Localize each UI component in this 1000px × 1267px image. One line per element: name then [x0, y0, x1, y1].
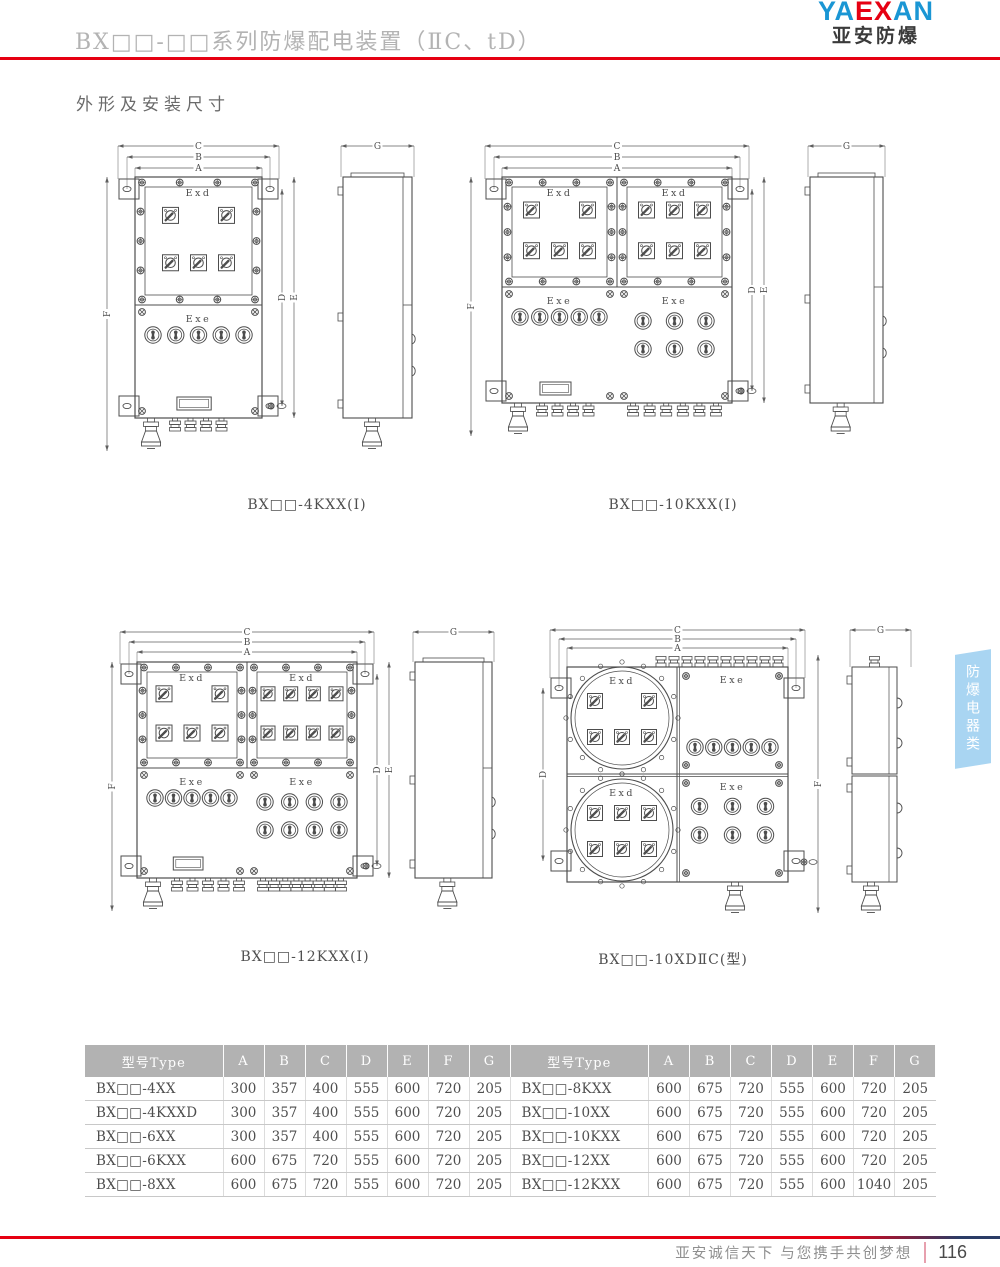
value-cell: 720	[854, 1101, 895, 1125]
table-row: BX□□-10KXX600675720555600720205	[511, 1125, 936, 1149]
model-cell: BX□□-6XX	[85, 1125, 223, 1149]
dim-label-E: E	[385, 767, 395, 774]
value-cell: 555	[772, 1149, 813, 1173]
model-cell: BX□□-4KXXD	[85, 1101, 223, 1125]
value-cell: 205	[895, 1149, 936, 1173]
value-cell: 600	[649, 1101, 690, 1125]
catalog-page: BX□□-□□系列防爆配电装置（ⅡC、tD） YAEXAN 亚安防爆 外形及安装…	[0, 0, 1000, 1267]
value-cell: 400	[305, 1101, 346, 1125]
dim-label-G: G	[843, 142, 850, 152]
dimension-table-right: 型号TypeABCDEFGBX□□-8KXX600675720555600720…	[511, 1045, 937, 1197]
dim-label-G: G	[450, 628, 457, 638]
dim-label-A: A	[613, 164, 621, 174]
value-cell: 555	[346, 1101, 387, 1125]
value-cell: 600	[223, 1173, 264, 1197]
footer-rule	[0, 1236, 1000, 1239]
category-side-tab-label: 防爆电器类	[963, 664, 983, 754]
column-header: A	[223, 1045, 264, 1077]
value-cell: 675	[690, 1101, 731, 1125]
table-row: BX□□-10XX600675720555600720205	[511, 1101, 936, 1125]
dim-label-C: C	[195, 142, 202, 152]
value-cell: 205	[469, 1077, 510, 1101]
value-cell: 600	[813, 1173, 854, 1197]
value-cell: 720	[731, 1101, 772, 1125]
value-cell: 600	[387, 1101, 428, 1125]
dim-label-G: G	[877, 626, 884, 636]
value-cell: 600	[649, 1077, 690, 1101]
technical-drawing-bx-10xd: ExdExdExeExeCBADFG	[535, 618, 915, 918]
panel-label: Exe	[720, 782, 745, 793]
value-cell: 600	[387, 1149, 428, 1173]
value-cell: 675	[690, 1173, 731, 1197]
model-cell: BX□□-8KXX	[511, 1077, 649, 1101]
model-cell: BX□□-8XX	[85, 1173, 223, 1197]
panel-label: Exd	[186, 188, 212, 199]
value-cell: 400	[305, 1125, 346, 1149]
dim-label-C: C	[244, 628, 251, 638]
column-header: C	[731, 1045, 772, 1077]
value-cell: 720	[428, 1125, 469, 1149]
panel-label: Exe	[720, 675, 745, 686]
column-header: G	[895, 1045, 936, 1077]
column-header: E	[387, 1045, 428, 1077]
value-cell: 555	[346, 1077, 387, 1101]
value-cell: 600	[813, 1101, 854, 1125]
column-header: D	[772, 1045, 813, 1077]
footer-slogan: 亚安诚信天下 与您携手共创梦想	[675, 1242, 912, 1263]
value-cell: 600	[813, 1149, 854, 1173]
value-cell: 205	[895, 1173, 936, 1197]
value-cell: 205	[469, 1125, 510, 1149]
dim-label-B: B	[614, 153, 621, 163]
value-cell: 600	[387, 1173, 428, 1197]
value-cell: 675	[264, 1149, 305, 1173]
column-header: D	[346, 1045, 387, 1077]
panel-label: Exd	[547, 188, 573, 199]
column-header: 型号Type	[85, 1045, 223, 1077]
value-cell: 675	[690, 1125, 731, 1149]
footer: 亚安诚信天下 与您携手共创梦想 116	[675, 1242, 967, 1263]
brand-logo-subtitle: 亚安防爆	[818, 27, 934, 48]
value-cell: 720	[854, 1125, 895, 1149]
page-title: BX□□-□□系列防爆配电装置（ⅡC、tD）	[75, 24, 542, 56]
value-cell: 555	[346, 1149, 387, 1173]
dim-label-D: D	[539, 771, 549, 778]
value-cell: 555	[772, 1077, 813, 1101]
logo-part: YA	[818, 0, 855, 26]
value-cell: 600	[813, 1077, 854, 1101]
table-row: BX□□-4KXXD300357400555600720205	[85, 1101, 510, 1125]
value-cell: 600	[649, 1173, 690, 1197]
drawing-caption: BX□□-10XDⅡC(型)	[588, 949, 758, 969]
dim-label-D: D	[278, 294, 288, 301]
model-cell: BX□□-10KXX	[511, 1125, 649, 1149]
value-cell: 205	[469, 1173, 510, 1197]
dim-label-D: D	[748, 286, 758, 293]
dimension-table-left: 型号TypeABCDEFGBX□□-4XX3003574005556007202…	[85, 1045, 511, 1197]
value-cell: 720	[854, 1077, 895, 1101]
value-cell: 720	[428, 1173, 469, 1197]
drawing-caption: BX□□-12KXX(Ⅰ)	[220, 949, 390, 965]
panel-label: Exe	[179, 777, 204, 788]
value-cell: 720	[428, 1077, 469, 1101]
dim-label-A: A	[194, 164, 202, 174]
value-cell: 720	[854, 1149, 895, 1173]
value-cell: 205	[895, 1077, 936, 1101]
table-row: BX□□-4XX300357400555600720205	[85, 1077, 510, 1101]
column-header: F	[854, 1045, 895, 1077]
value-cell: 720	[305, 1149, 346, 1173]
panel-label: Exd	[179, 673, 205, 684]
table-row: BX□□-8XX600675720555600720205	[85, 1173, 510, 1197]
value-cell: 720	[731, 1173, 772, 1197]
value-cell: 357	[264, 1125, 305, 1149]
dim-label-B: B	[244, 638, 251, 648]
brand-logo-text: YAEXAN	[818, 0, 934, 27]
dim-label-B: B	[195, 153, 202, 163]
value-cell: 600	[649, 1125, 690, 1149]
value-cell: 720	[731, 1149, 772, 1173]
table-row: BX□□-6KXX600675720555600720205	[85, 1149, 510, 1173]
panel-label: Exe	[662, 296, 687, 307]
dim-label-F: F	[103, 311, 113, 317]
column-header: G	[469, 1045, 510, 1077]
model-cell: BX□□-4XX	[85, 1077, 223, 1101]
value-cell: 720	[428, 1101, 469, 1125]
header-rule	[0, 57, 1000, 60]
value-cell: 555	[346, 1125, 387, 1149]
table-row: BX□□-8KXX600675720555600720205	[511, 1077, 936, 1101]
model-cell: BX□□-10XX	[511, 1101, 649, 1125]
table-header-row: 型号TypeABCDEFG	[85, 1045, 510, 1077]
model-cell: BX□□-6KXX	[85, 1149, 223, 1173]
value-cell: 720	[305, 1173, 346, 1197]
panel-label: Exe	[547, 296, 572, 307]
page-number: 116	[924, 1242, 967, 1263]
value-cell: 555	[772, 1173, 813, 1197]
table-row: BX□□-12KXX6006757205556001040205	[511, 1173, 936, 1197]
dim-label-F: F	[814, 781, 824, 787]
drawing-caption: BX□□-4KXX(Ⅰ)	[222, 497, 392, 513]
value-cell: 600	[813, 1125, 854, 1149]
value-cell: 205	[895, 1125, 936, 1149]
dim-label-A: A	[243, 648, 251, 658]
panel-label: Exe	[186, 314, 211, 325]
value-cell: 720	[428, 1149, 469, 1173]
value-cell: 600	[649, 1149, 690, 1173]
logo-part: EX	[855, 0, 893, 26]
dim-label-F: F	[467, 303, 477, 309]
panel-label: Exd	[609, 788, 635, 799]
model-cell: BX□□-12XX	[511, 1149, 649, 1173]
column-header: F	[428, 1045, 469, 1077]
value-cell: 400	[305, 1077, 346, 1101]
dim-label-A: A	[673, 644, 681, 654]
value-cell: 720	[731, 1077, 772, 1101]
value-cell: 357	[264, 1101, 305, 1125]
column-header: C	[305, 1045, 346, 1077]
dim-label-F: F	[108, 783, 118, 789]
section-title: 外形及安装尺寸	[76, 90, 230, 115]
value-cell: 300	[223, 1125, 264, 1149]
technical-drawing-bx-10kxx: ExdExdExeExeCBAFDEG	[455, 130, 905, 460]
value-cell: 720	[731, 1125, 772, 1149]
value-cell: 555	[772, 1125, 813, 1149]
value-cell: 205	[469, 1101, 510, 1125]
panel-label: Exe	[289, 777, 314, 788]
value-cell: 555	[772, 1101, 813, 1125]
dim-label-D: D	[373, 766, 383, 773]
panel-label: Exd	[609, 676, 635, 687]
brand-logo: YAEXAN 亚安防爆	[818, 0, 934, 48]
dim-label-E: E	[760, 287, 770, 294]
panel-label: Exd	[289, 673, 315, 684]
value-cell: 675	[264, 1173, 305, 1197]
value-cell: 600	[223, 1149, 264, 1173]
column-header: E	[813, 1045, 854, 1077]
value-cell: 357	[264, 1077, 305, 1101]
value-cell: 675	[690, 1149, 731, 1173]
value-cell: 300	[223, 1101, 264, 1125]
drawing-caption: BX□□-10KXX(Ⅰ)	[588, 497, 758, 513]
dim-label-E: E	[290, 294, 300, 301]
value-cell: 600	[387, 1125, 428, 1149]
technical-drawing-bx-4kxx: ExdExeCBAFDEG	[95, 130, 425, 460]
value-cell: 555	[346, 1173, 387, 1197]
panel-label: Exd	[662, 188, 688, 199]
dimensions-table: 型号TypeABCDEFGBX□□-4XX3003574005556007202…	[85, 1045, 935, 1197]
model-cell: BX□□-12KXX	[511, 1173, 649, 1197]
column-header: B	[690, 1045, 731, 1077]
category-side-tab: 防爆电器类	[955, 649, 991, 769]
value-cell: 300	[223, 1077, 264, 1101]
table-header-row: 型号TypeABCDEFG	[511, 1045, 936, 1077]
logo-part: AN	[893, 0, 934, 26]
value-cell: 205	[895, 1101, 936, 1125]
technical-drawing-bx-12kxx: ExdExdExeExeCBAFDEG	[100, 618, 500, 918]
value-cell: 600	[387, 1077, 428, 1101]
value-cell: 675	[690, 1077, 731, 1101]
value-cell: 205	[469, 1149, 510, 1173]
column-header: 型号Type	[511, 1045, 649, 1077]
column-header: A	[649, 1045, 690, 1077]
value-cell: 1040	[854, 1173, 895, 1197]
dim-label-C: C	[614, 142, 621, 152]
column-header: B	[264, 1045, 305, 1077]
table-row: BX□□-12XX600675720555600720205	[511, 1149, 936, 1173]
table-row: BX□□-6XX300357400555600720205	[85, 1125, 510, 1149]
dim-label-G: G	[374, 142, 381, 152]
